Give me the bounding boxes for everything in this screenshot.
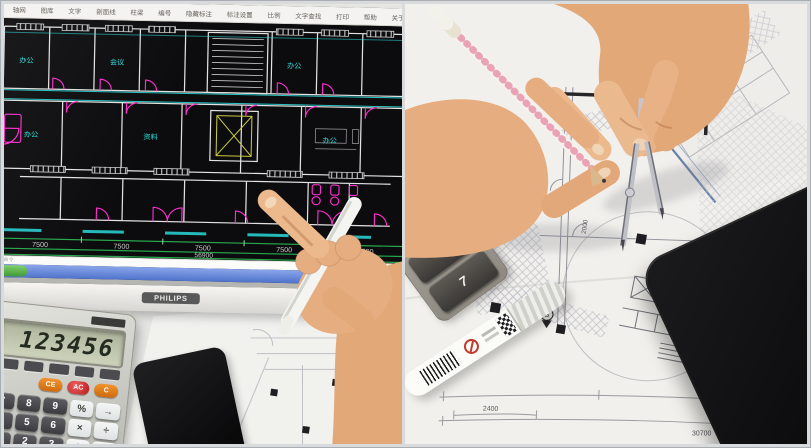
- pencil-eraser-cap: [435, 12, 447, 24]
- pointing-hand: [4, 4, 402, 444]
- index-finger: [269, 200, 319, 247]
- left-photo: 轴网 图库 文字 剖面线 柱梁 编号 隐藏标注 标注设置 比例 文字查找 打印 …: [4, 4, 402, 444]
- split-photo: 轴网 图库 文字 剖面线 柱梁 编号 隐藏标注 标注设置 比例 文字查找 打印 …: [0, 0, 811, 448]
- right-photo: 9000 30700 2400 2000 B 0 1 4 7: [405, 4, 807, 444]
- hands-and-tools: [405, 4, 807, 444]
- adjuster-knob: [625, 188, 634, 197]
- pencil-hand: [405, 12, 613, 258]
